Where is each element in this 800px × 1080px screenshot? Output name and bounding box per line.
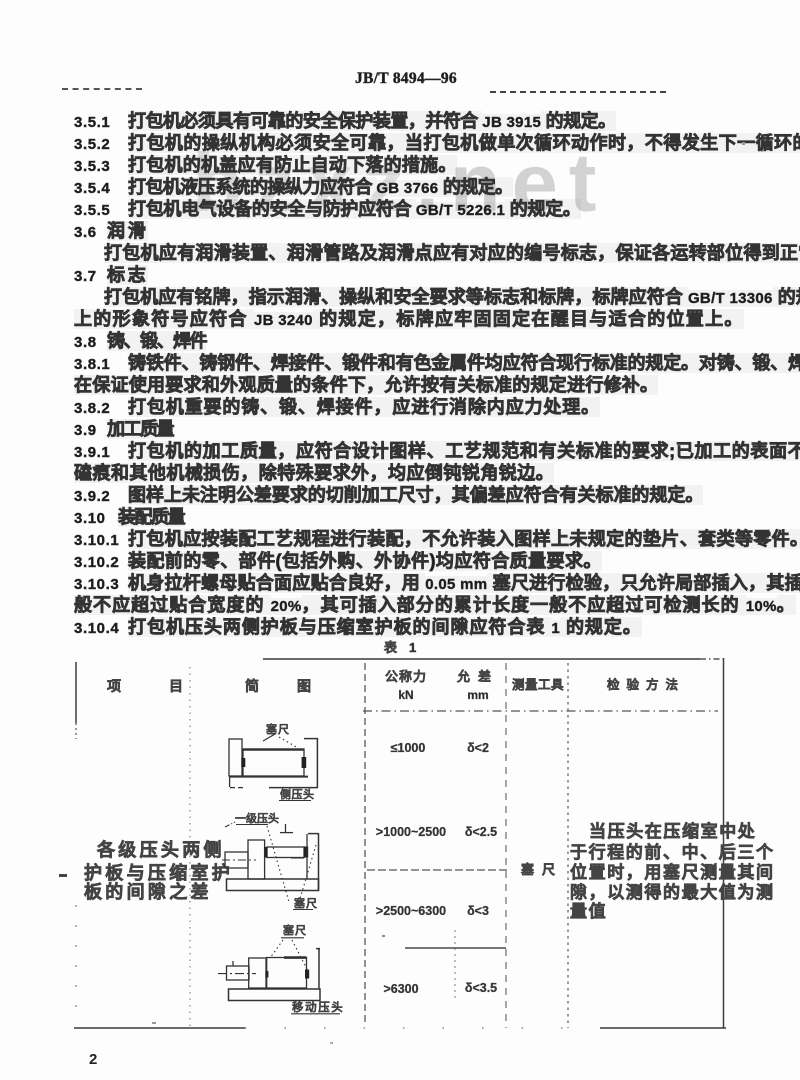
svg-text:项目: 项目 bbox=[107, 678, 231, 694]
svg-text:≤1000: ≤1000 bbox=[391, 741, 426, 755]
svg-text:塞尺: 塞尺 bbox=[521, 862, 563, 877]
svg-text:侧压头: 侧压头 bbox=[280, 787, 315, 801]
svg-text:δ<2.5: δ<2.5 bbox=[465, 825, 497, 839]
svg-text:>2500~6300: >2500~6300 bbox=[376, 904, 446, 918]
svg-text:量值: 量值 bbox=[570, 901, 607, 921]
svg-text:塞尺: 塞尺 bbox=[282, 923, 307, 937]
svg-text:各级压头两侧: 各级压头两侧 bbox=[96, 839, 225, 860]
svg-text:kN: kN bbox=[398, 688, 413, 702]
svg-text:δ<2: δ<2 bbox=[467, 741, 489, 755]
svg-text:当压头在压缩室中处: 当压头在压缩室中处 bbox=[589, 821, 756, 841]
svg-text:护板与压缩室护: 护板与压缩室护 bbox=[84, 862, 233, 883]
svg-text:1: 1 bbox=[409, 640, 416, 655]
svg-text:塞尺: 塞尺 bbox=[265, 722, 290, 736]
svg-text:于行程的前、中、后三个: 于行程的前、中、后三个 bbox=[570, 842, 775, 862]
svg-text:移动压头: 移动压头 bbox=[292, 1000, 344, 1014]
svg-text:>6300: >6300 bbox=[383, 982, 418, 996]
svg-text:表: 表 bbox=[383, 640, 409, 655]
svg-text:简图: 简图 bbox=[245, 678, 349, 694]
svg-text:检验方法: 检验方法 bbox=[607, 677, 685, 692]
svg-text:允差: 允差 bbox=[456, 669, 499, 684]
svg-text:隙，以测得的最大值为测: 隙，以测得的最大值为测 bbox=[570, 882, 775, 902]
svg-text:位置时，用塞尺测量其间: 位置时，用塞尺测量其间 bbox=[570, 862, 775, 882]
svg-text:板的间隙之差: 板的间隙之差 bbox=[84, 881, 212, 902]
svg-text:测量工具: 测量工具 bbox=[512, 677, 564, 692]
svg-text:一级压头: 一级压头 bbox=[235, 811, 279, 825]
svg-text:>1000~2500: >1000~2500 bbox=[376, 825, 446, 839]
svg-text:塞尺: 塞尺 bbox=[293, 896, 318, 910]
svg-text:公称力: 公称力 bbox=[385, 669, 427, 684]
svg-text:δ<3: δ<3 bbox=[467, 904, 489, 918]
svg-text:mm: mm bbox=[467, 688, 488, 702]
svg-text:δ<3.5: δ<3.5 bbox=[465, 981, 497, 995]
